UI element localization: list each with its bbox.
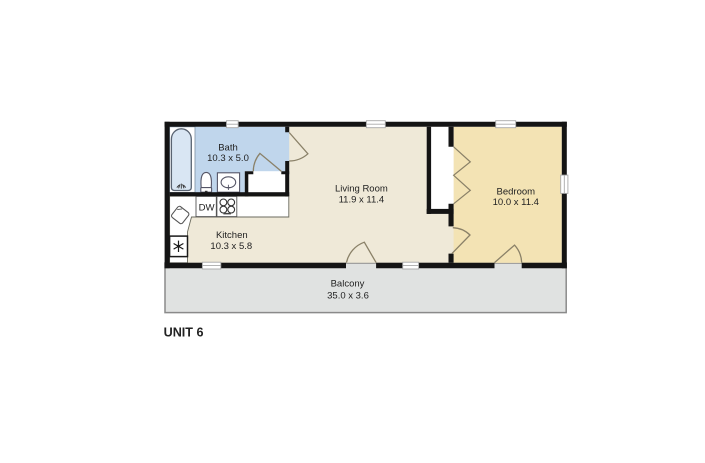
svg-text:10.3 x 5.0: 10.3 x 5.0 [207, 153, 249, 164]
svg-text:UNIT 6: UNIT 6 [164, 326, 204, 340]
svg-text:35.0 x 3.6: 35.0 x 3.6 [327, 291, 369, 302]
svg-text:DW: DW [199, 202, 216, 213]
svg-text:Kitchen: Kitchen [216, 230, 248, 241]
svg-text:Bedroom: Bedroom [497, 186, 536, 197]
svg-text:10.0 x 11.4: 10.0 x 11.4 [493, 197, 539, 208]
svg-text:Living Room: Living Room [335, 183, 388, 194]
svg-text:10.3 x 5.8: 10.3 x 5.8 [210, 241, 252, 252]
svg-text:Balcony: Balcony [331, 278, 365, 289]
svg-text:Bath: Bath [218, 142, 238, 153]
svg-text:11.9 x 11.4: 11.9 x 11.4 [339, 194, 385, 205]
